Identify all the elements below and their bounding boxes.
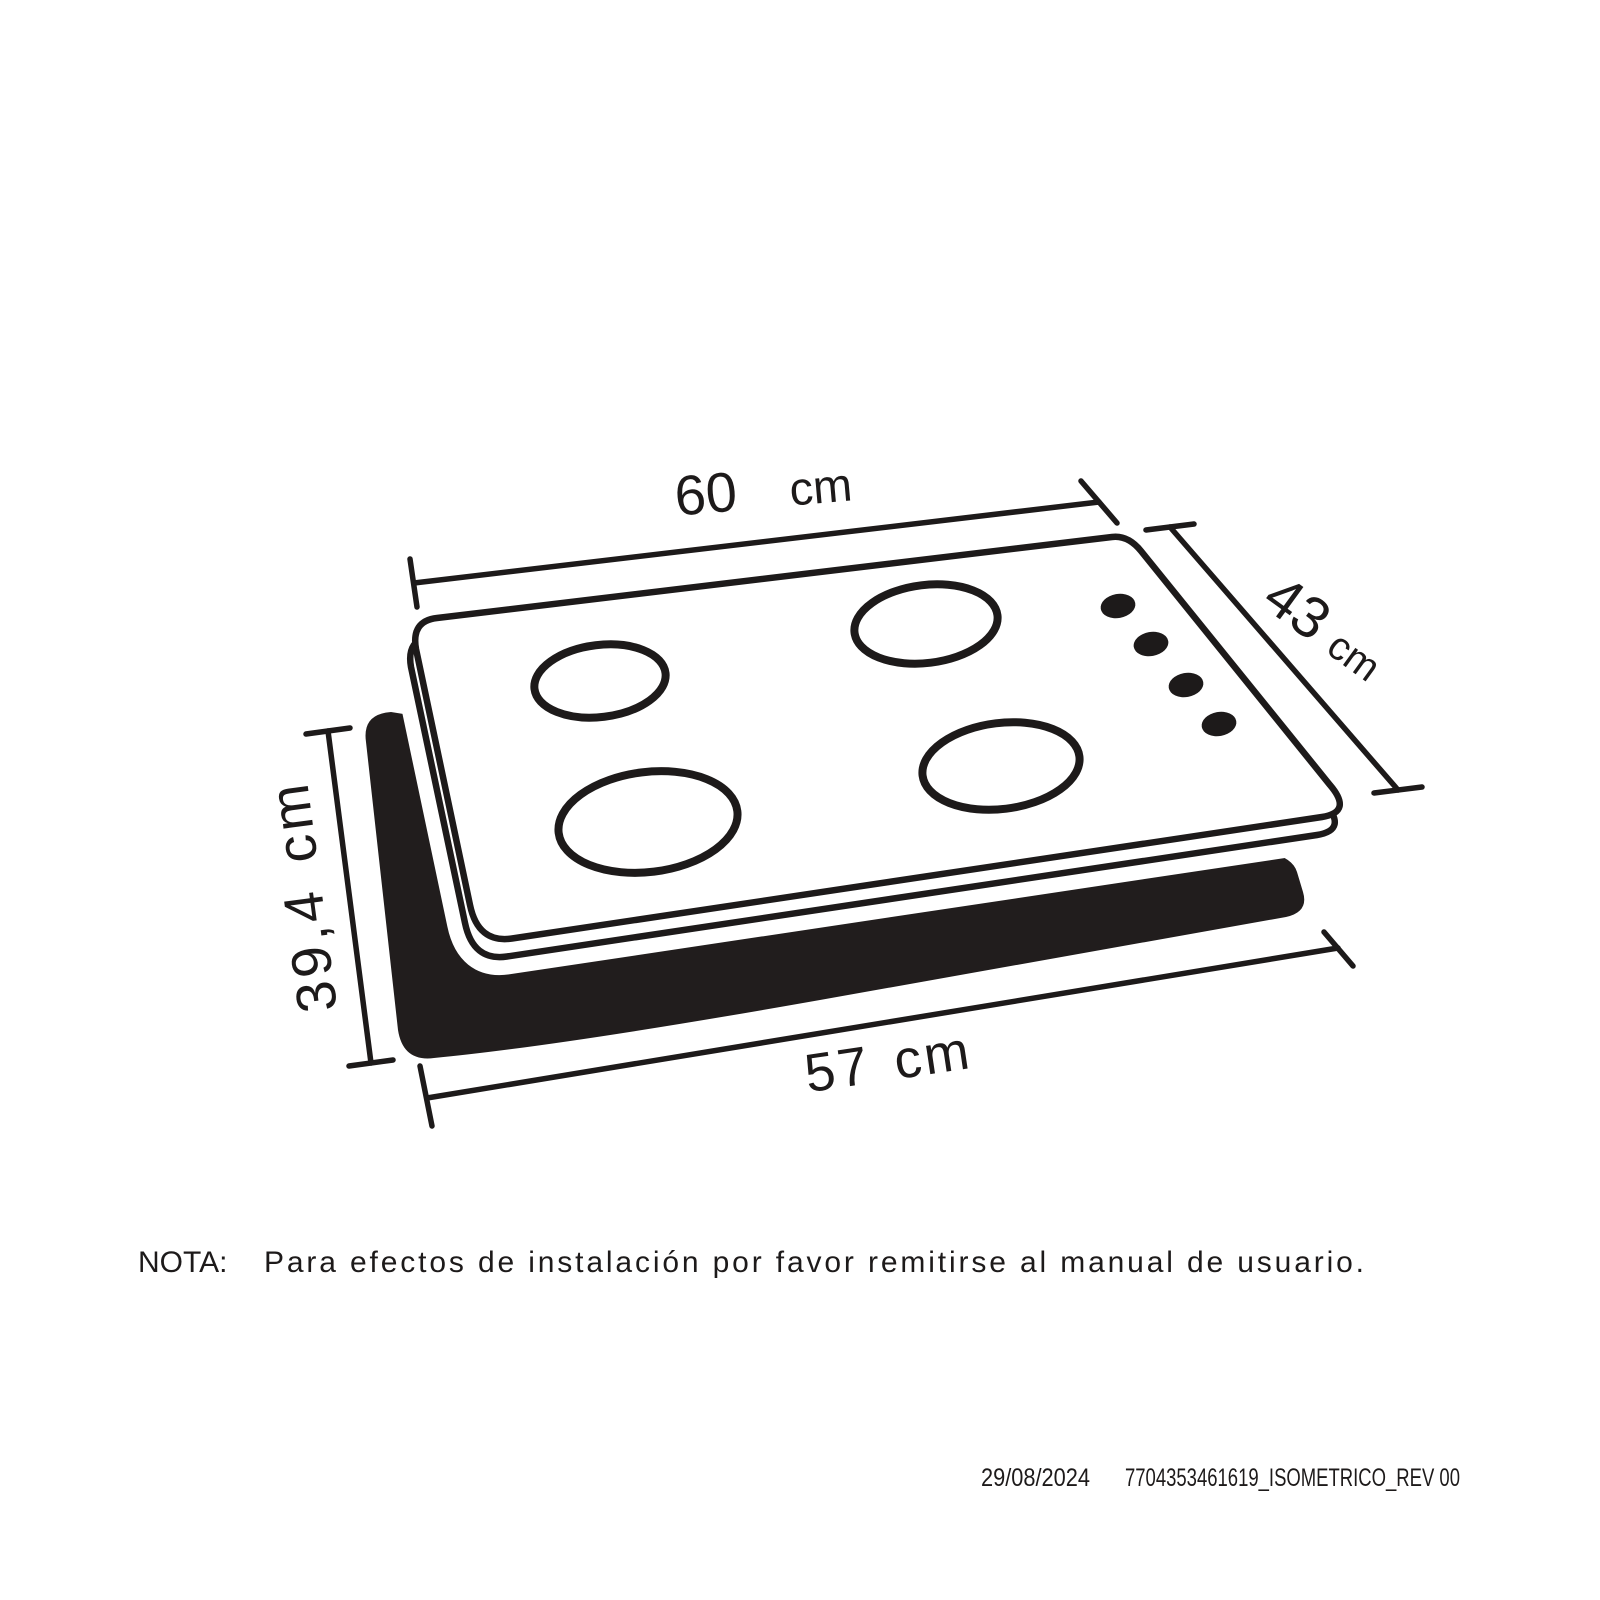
svg-text:7704353461619_ISOMETRICO_REV 0: 7704353461619_ISOMETRICO_REV 00 — [1125, 1464, 1460, 1492]
svg-text:39,4 cm: 39,4 cm — [256, 777, 349, 1016]
svg-text:cm: cm — [787, 457, 854, 515]
svg-text:60: 60 — [672, 459, 740, 527]
svg-text:Para efectos de instalación po: Para efectos de instalación por favor re… — [264, 1246, 1364, 1279]
svg-text:29/08/2024: 29/08/2024 — [981, 1464, 1090, 1492]
svg-text:cm: cm — [1319, 623, 1388, 690]
svg-text:NOTA:: NOTA: — [138, 1246, 227, 1279]
